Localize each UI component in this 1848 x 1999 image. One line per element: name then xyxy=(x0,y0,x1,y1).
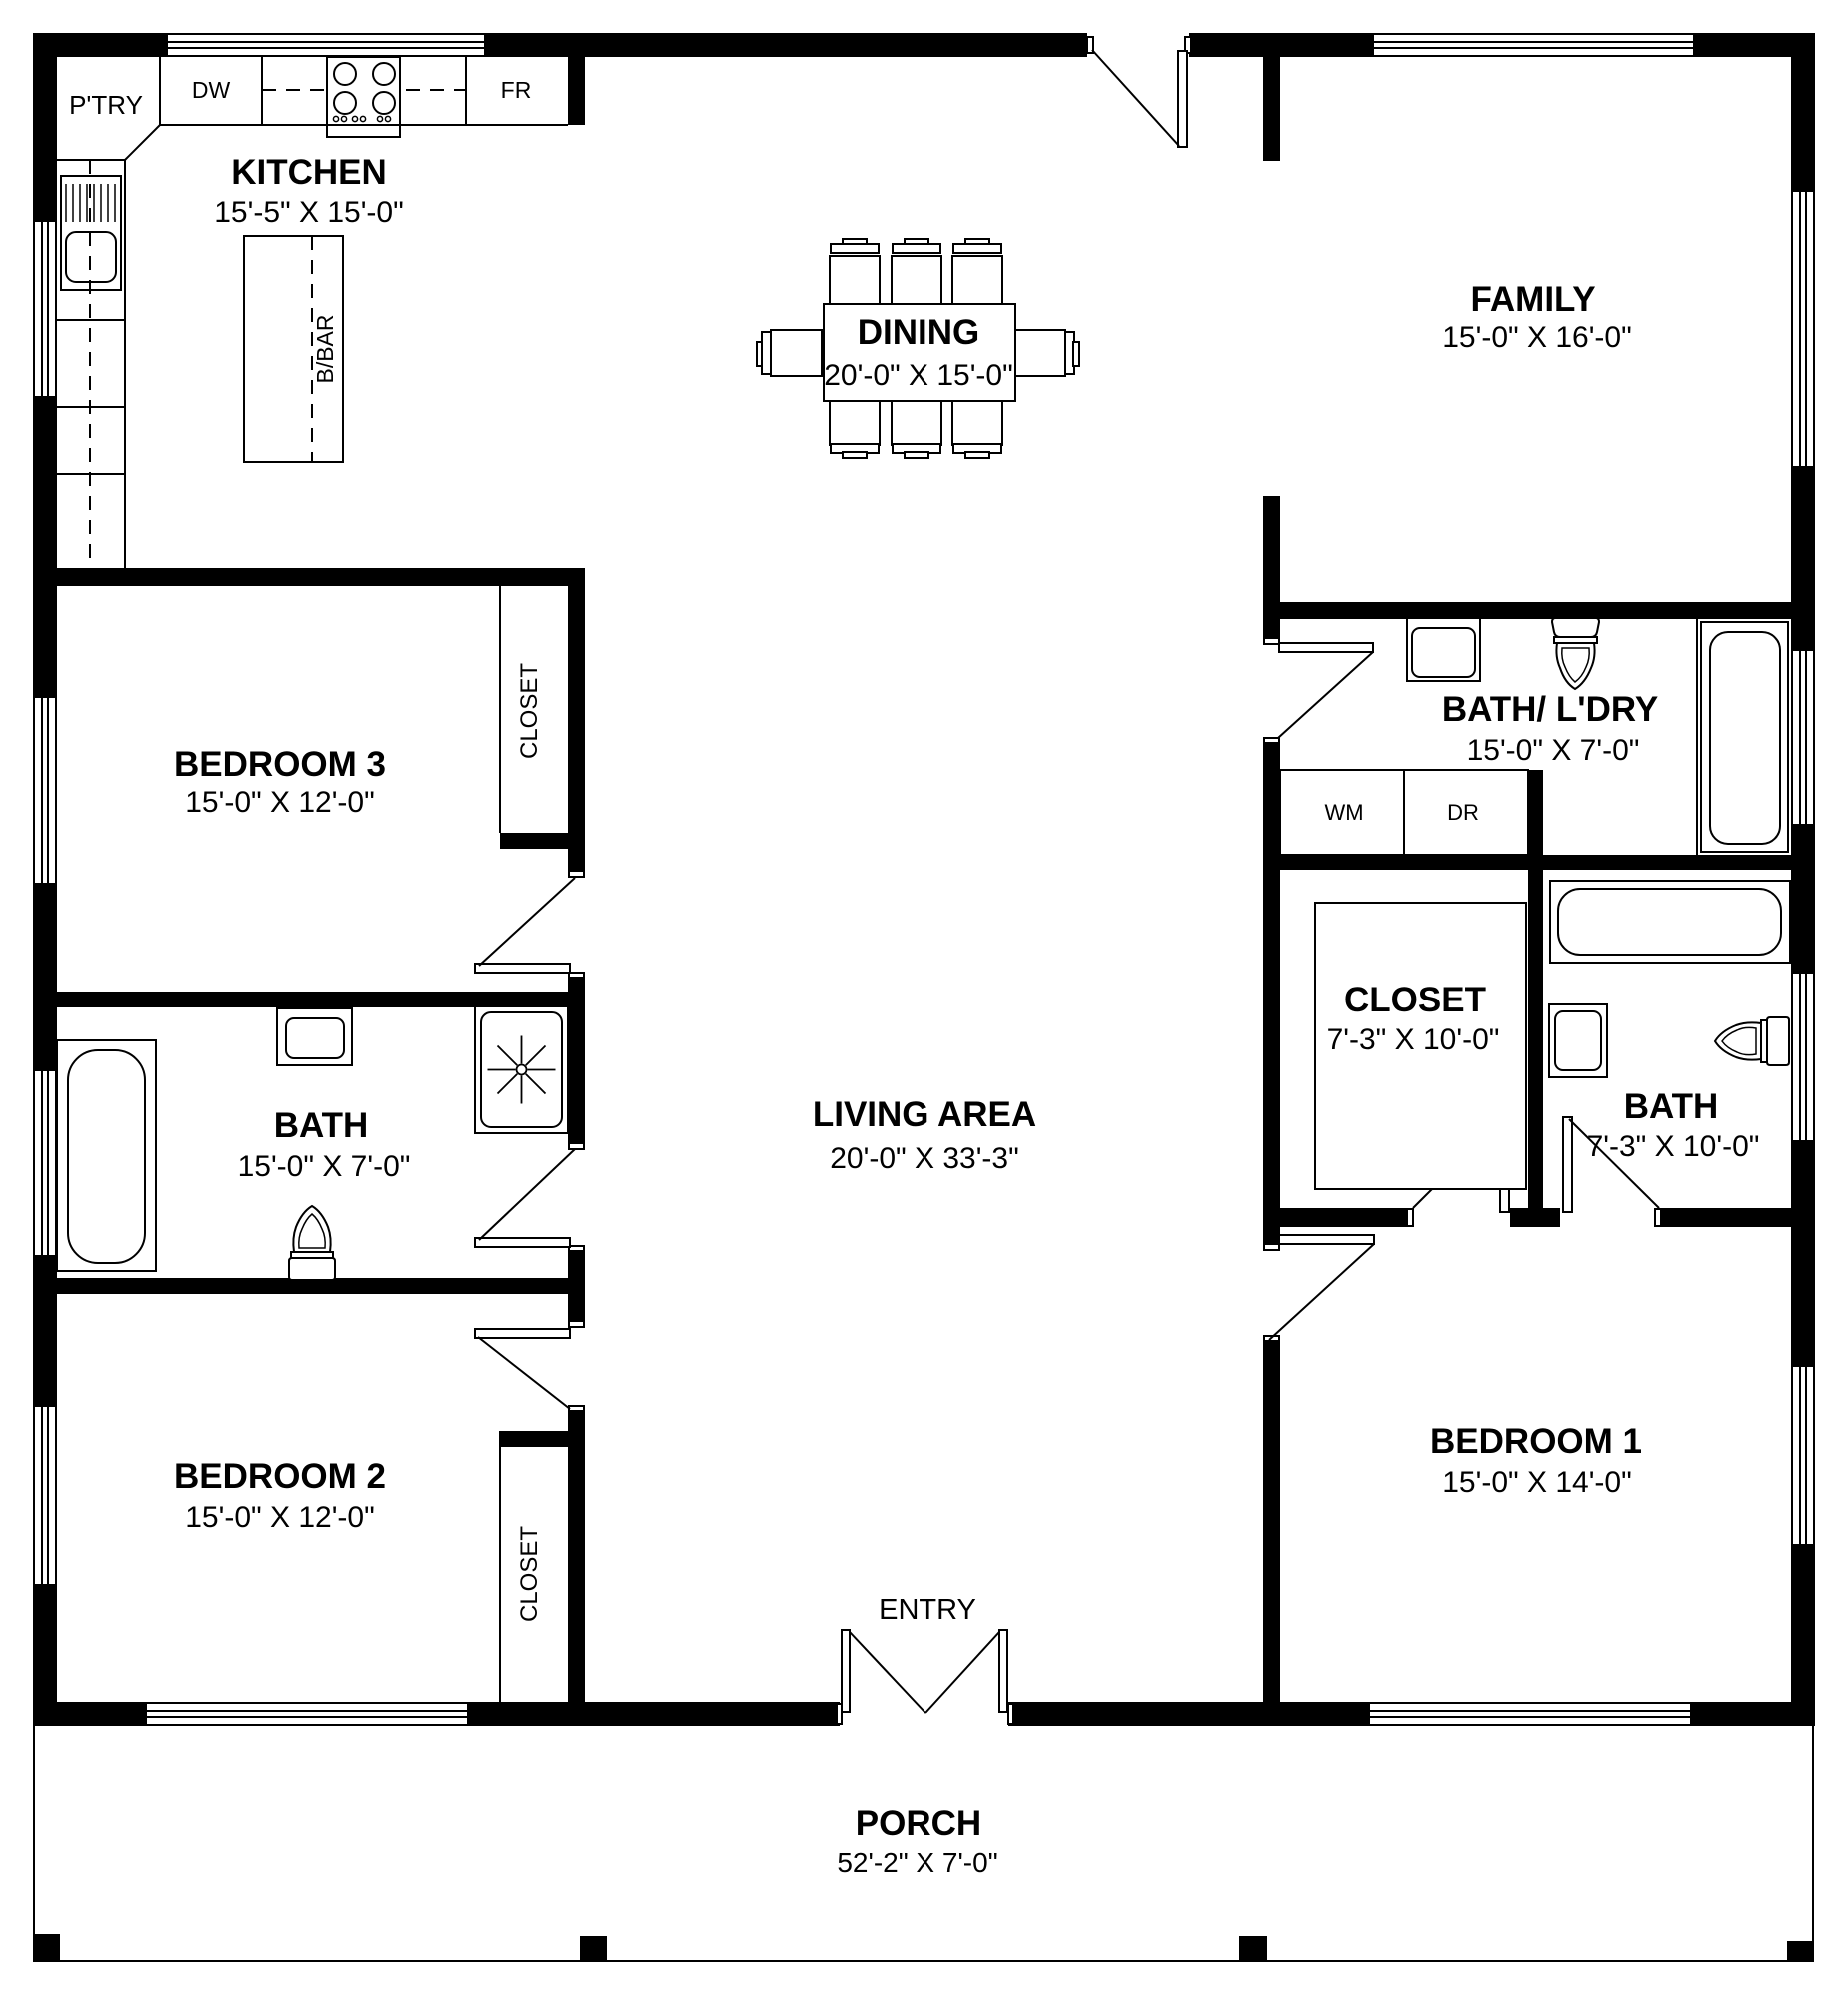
svg-text:DW: DW xyxy=(192,77,231,103)
svg-text:20'-0" X 15'-0": 20'-0" X 15'-0" xyxy=(824,359,1013,392)
svg-text:BEDROOM 3: BEDROOM 3 xyxy=(174,745,386,784)
svg-text:FAMILY: FAMILY xyxy=(1470,280,1595,319)
svg-text:20'-0" X 33'-3": 20'-0" X 33'-3" xyxy=(830,1142,1019,1175)
svg-text:CLOSET: CLOSET xyxy=(516,663,543,759)
svg-text:15'-0" X 14'-0": 15'-0" X 14'-0" xyxy=(1442,1466,1632,1499)
svg-text:BEDROOM 1: BEDROOM 1 xyxy=(1430,1422,1642,1461)
svg-text:KITCHEN: KITCHEN xyxy=(231,153,387,192)
svg-text:P'TRY: P'TRY xyxy=(69,90,143,120)
svg-text:7'-3" X 10'-0": 7'-3" X 10'-0" xyxy=(1327,1023,1500,1056)
svg-text:BEDROOM 2: BEDROOM 2 xyxy=(174,1457,386,1496)
svg-text:15'-0" X 12'-0": 15'-0" X 12'-0" xyxy=(185,1501,375,1534)
svg-text:BATH: BATH xyxy=(274,1106,369,1145)
svg-text:BATH: BATH xyxy=(1624,1087,1719,1126)
svg-text:DR: DR xyxy=(1447,800,1479,825)
svg-text:LIVING AREA: LIVING AREA xyxy=(813,1095,1036,1134)
svg-text:ENTRY: ENTRY xyxy=(879,1594,976,1626)
svg-text:DINING: DINING xyxy=(858,313,980,352)
svg-text:WM: WM xyxy=(1324,800,1363,825)
svg-text:CLOSET: CLOSET xyxy=(516,1526,543,1622)
svg-text:FR: FR xyxy=(501,77,532,103)
svg-text:15'-5" X 15'-0": 15'-5" X 15'-0" xyxy=(214,196,404,229)
svg-text:B/BAR: B/BAR xyxy=(312,314,338,383)
svg-text:PORCH: PORCH xyxy=(856,1804,981,1843)
svg-text:15'-0" X 7'-0": 15'-0" X 7'-0" xyxy=(238,1150,411,1183)
svg-text:15'-0" X 12'-0": 15'-0" X 12'-0" xyxy=(185,786,375,819)
svg-text:15'-0" X 7'-0": 15'-0" X 7'-0" xyxy=(1467,734,1640,767)
svg-text:15'-0" X 16'-0": 15'-0" X 16'-0" xyxy=(1442,321,1632,354)
svg-text:CLOSET: CLOSET xyxy=(1344,981,1486,1019)
svg-text:7'-3" X 10'-0": 7'-3" X 10'-0" xyxy=(1587,1130,1760,1163)
svg-text:52'-2" X 7'-0": 52'-2" X 7'-0" xyxy=(837,1847,997,1878)
svg-text:BATH/ L'DRY: BATH/ L'DRY xyxy=(1442,690,1658,729)
